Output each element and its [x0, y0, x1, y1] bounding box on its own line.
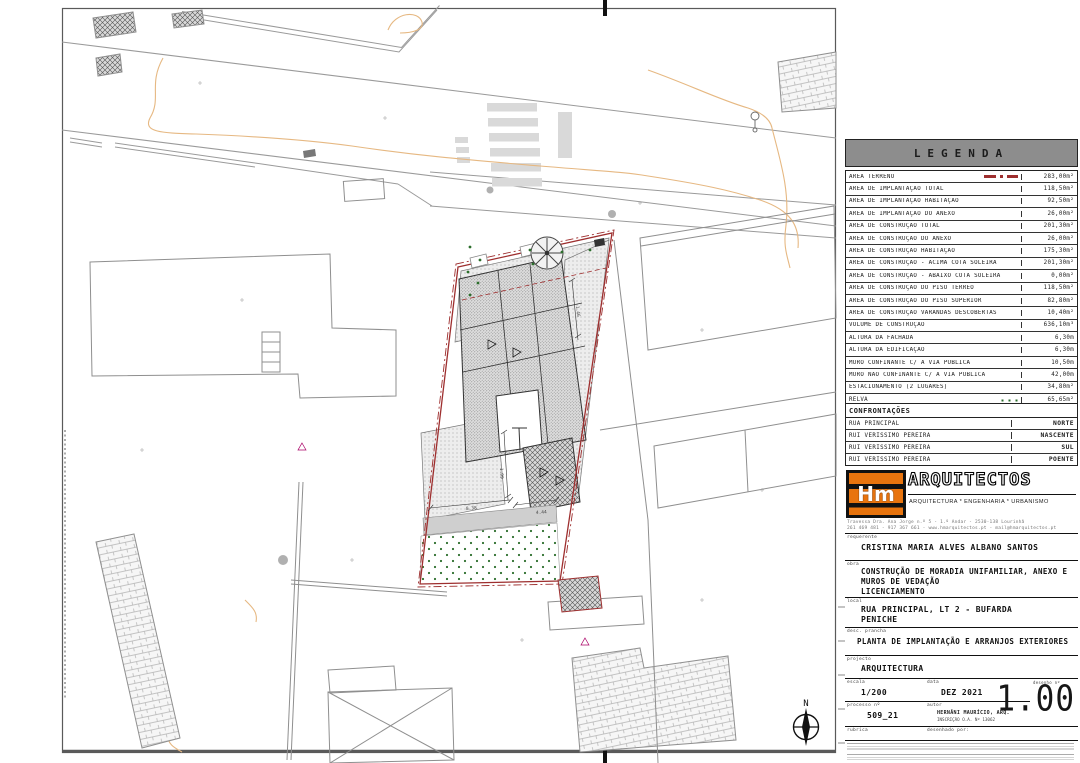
legend-row: MURO CONFINANTE C/ A VIA PÚBLICA10,50m	[846, 357, 1077, 369]
legend-value: 118,50m²	[1021, 186, 1077, 192]
legend-value: 10,40m²	[1021, 310, 1077, 316]
legend-value: 201,30m²	[1021, 260, 1077, 266]
legend-title: LEGENDA	[845, 139, 1078, 167]
confrontacao-row: RUI VERISSIMO PEREIRAPOENTE	[846, 454, 1077, 465]
dimension-label: 4.44	[536, 509, 548, 516]
logo-text: Hm	[857, 482, 895, 506]
legend-value: 175,30m²	[1021, 248, 1077, 254]
confrontacao-row: RUI VERISSIMO PEREIRASUL	[846, 442, 1077, 454]
legend-row: ÁREA DE CONSTRUÇÃO DO PISO SUPERIOR82,80…	[846, 295, 1077, 307]
confrontacoes-title: CONFRONTAÇÕES	[846, 404, 1077, 418]
legend-row: MURO NÃO CONFINANTE C/ A VIA PÚBLICA42,0…	[846, 369, 1077, 381]
north-label: N	[803, 699, 808, 709]
fine-print	[847, 754, 1074, 760]
processo-value: 509_21	[867, 711, 898, 720]
confrontacao-row: RUI VERISSIMO PEREIRANASCENTE	[846, 430, 1077, 442]
legend-row: ÁREA DE CONSTRUÇÃO HABITAÇÃO175,30m²	[846, 245, 1077, 257]
projecto-value: ARQUITECTURA	[861, 664, 924, 673]
legend-row: ESTACIONAMENTO (2 LUGARES)34,80m²	[846, 382, 1077, 394]
dimension-label: 8.38	[466, 505, 478, 512]
field-obra: obra CONSTRUÇÃO DE MORADIA UNIFAMILIAR, …	[845, 560, 1078, 598]
roads	[62, 6, 836, 239]
legend-value: 82,80m²	[1021, 298, 1077, 304]
firm-tagline: ARQUITECTURA * ENGENHARIA * URBANISMO	[909, 499, 1049, 505]
obra-line: LICENCIAMENTO	[861, 587, 925, 596]
terreno-symbol-icon	[984, 175, 1018, 178]
field-requerente: requerente CRISTINA MARIA ALVES ALBANO S…	[845, 533, 1078, 561]
legend-value: 201,30m²	[1021, 223, 1077, 229]
legend-value: 26,00m²	[1021, 236, 1077, 242]
field-label: rubrica	[847, 728, 868, 733]
legend-row: ÁREA DE CONSTRUÇÃO - ABAIXO COTA SOLEIRA…	[846, 270, 1077, 282]
dimension-label: 1.99	[498, 468, 505, 479]
prancha-value: PLANTA DE IMPLANTAÇÃO E ARRANJOS EXTERIO…	[857, 637, 1068, 646]
field-label: obra	[847, 562, 859, 567]
legend-value: 42,00m	[1021, 372, 1077, 378]
requerente-value: CRISTINA MARIA ALVES ALBANO SANTOS	[861, 543, 1038, 552]
lamp-icon	[751, 112, 759, 132]
field-prancha: desc. prancha PLANTA DE IMPLANTAÇÃO E AR…	[845, 627, 1078, 656]
field-label: local	[847, 599, 862, 604]
drawing-sheet: 8.384.441.991.46 N LEGENDA ÁREA TERRENO2…	[0, 0, 1080, 763]
legend-table: ÁREA TERRENO283,00m²ÁREA DE IMPLANTAÇÃO …	[845, 170, 1078, 419]
obra-line: MUROS DE VEDAÇÃO	[861, 577, 940, 586]
fold-mark-top	[603, 0, 607, 16]
legend-value: 636,10m³	[1021, 322, 1077, 328]
field-label: requerente	[847, 535, 877, 540]
address-line: 261 469 481 - 917 367 661 - www.hmarquit…	[847, 526, 1056, 532]
legend-value: 34,80m²	[1021, 384, 1077, 390]
field-projecto: projecto ARQUITECTURA	[845, 655, 1078, 679]
legend-row: ÁREA TERRENO283,00m²	[846, 171, 1077, 183]
fine-print	[847, 743, 1074, 751]
obra-line: CONSTRUÇÃO DE MORADIA UNIFAMILIAR, ANEXO…	[861, 567, 1067, 576]
tree-icon	[531, 237, 563, 269]
field-label: data	[927, 680, 939, 685]
field-label: desc. prancha	[847, 629, 886, 634]
legend-row: ÁREA DE IMPLANTAÇÃO HABITAÇÃO92,50m²	[846, 196, 1077, 208]
dimension-label: 1.46	[574, 306, 581, 318]
data-value: DEZ 2021	[941, 688, 983, 697]
legend-row: ÁREA DE IMPLANTAÇÃO TOTAL118,50m²	[846, 183, 1077, 195]
local-line: PENICHE	[861, 615, 898, 624]
north-arrow-icon: N	[793, 699, 819, 746]
legend-row: ALTURA DA EDIFICAÇÃO6,30m	[846, 344, 1077, 356]
legend-value: 118,50m²	[1021, 285, 1077, 291]
legend-row: VOLUME DE CONSTRUÇÃO636,10m³	[846, 320, 1077, 332]
confrontacoes-rows: RUA PRINCIPALNORTERUI VERISSIMO PEREIRAN…	[846, 418, 1077, 465]
margin-ticks	[838, 607, 845, 743]
firm-address: Travessa Dra. Ana Jorge n.º 5 - 1.º Anda…	[847, 520, 1056, 532]
field-label: escala	[847, 680, 865, 685]
legend-value: 26,00m²	[1021, 211, 1077, 217]
legend-row: ÁREA DE CONSTRUÇÃO DO PISO TÉRREO118,50m…	[846, 283, 1077, 295]
subject-lot: 8.384.441.991.46	[418, 230, 614, 612]
local-line: RUA PRINCIPAL, LT 2 - BUFARDA	[861, 605, 1012, 614]
crosswalk	[455, 103, 572, 187]
legend-value: 0,00m²	[1021, 273, 1077, 279]
confrontacoes-table: CONFRONTAÇÕES RUA PRINCIPALNORTERUI VERI…	[845, 403, 1078, 466]
legend-row: ALTURA DA FACHADA6,30m	[846, 332, 1077, 344]
field-label: autor	[927, 703, 942, 708]
firm-rule	[908, 494, 1076, 495]
outbuilding	[558, 576, 602, 612]
field-label: projecto	[847, 657, 871, 662]
legend-row: ÁREA DE CONSTRUÇÃO VARANDAS DESCOBERTAS1…	[846, 307, 1077, 319]
legend-value: 283,00m²	[1021, 174, 1077, 180]
sheet-frame	[62, 0, 845, 763]
autor-line: HERNÂNI MAURÍCIO, ARQ.	[937, 710, 1010, 716]
site-plan: 8.384.441.991.46 N	[0, 0, 845, 763]
field-label: desenhado por:	[927, 728, 969, 733]
field-label: processo nº	[847, 703, 880, 708]
legend-row: ÁREA DE CONSTRUÇÃO TOTAL201,30m²	[846, 221, 1077, 233]
field-local: local RUA PRINCIPAL, LT 2 - BUFARDA PENI…	[845, 597, 1078, 628]
legend-row: ÁREA DE CONSTRUÇÃO DO ANEXO26,00m²	[846, 233, 1077, 245]
legend-value: 6,30m	[1021, 335, 1077, 341]
firm-name: ARQUITECTOS	[908, 470, 1032, 490]
courtyard-void	[496, 390, 542, 452]
plot-stamp	[64, 430, 66, 700]
legend-row: ÁREA DE CONSTRUÇÃO - ACIMA COTA SOLEIRA2…	[846, 258, 1077, 270]
legend-value: 65,65m²	[1021, 397, 1077, 403]
legend-panel: LEGENDA ÁREA TERRENO283,00m²ÁREA DE IMPL…	[845, 0, 1078, 763]
company-logo: Hm	[846, 470, 906, 518]
legend-value: 10,50m	[1021, 360, 1077, 366]
legend-value: 92,50m²	[1021, 198, 1077, 204]
legend-value: 6,30m	[1021, 347, 1077, 353]
autor-line: INSCRIÇÃO O.A. Nº 13062	[937, 717, 995, 722]
legend-row: ÁREA DE IMPLANTAÇÃO DO ANEXO26,00m²	[846, 208, 1077, 220]
confrontacao-row: RUA PRINCIPALNORTE	[846, 418, 1077, 430]
firm-block: Hm ARQUITECTOS ARQUITECTURA * ENGENHARIA…	[845, 468, 1078, 518]
escala-value: 1/200	[861, 688, 887, 697]
